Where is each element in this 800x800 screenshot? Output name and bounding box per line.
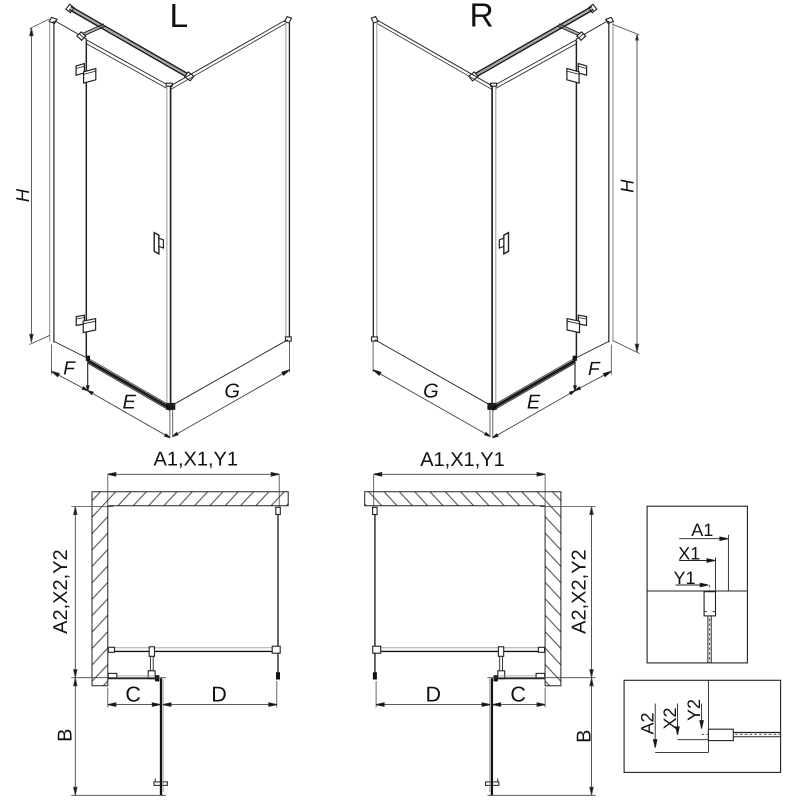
svg-text:A2,X2,Y2: A2,X2,Y2 <box>50 549 72 634</box>
svg-text:A1: A1 <box>691 520 713 540</box>
svg-text:Y2: Y2 <box>684 699 704 721</box>
svg-text:D: D <box>426 682 442 706</box>
svg-text:A1,X1,Y1: A1,X1,Y1 <box>154 449 239 471</box>
svg-text:G: G <box>423 381 439 403</box>
svg-text:F: F <box>63 359 76 380</box>
svg-text:B: B <box>574 730 596 743</box>
svg-text:E: E <box>527 392 541 414</box>
svg-text:A2,X2,Y2: A2,X2,Y2 <box>569 549 591 634</box>
svg-text:X1: X1 <box>678 543 700 563</box>
svg-text:A2: A2 <box>638 712 658 734</box>
svg-text:E: E <box>123 392 137 414</box>
svg-text:Y1: Y1 <box>674 568 696 588</box>
svg-text:H: H <box>616 179 637 193</box>
svg-text:L: L <box>170 0 189 35</box>
svg-text:A1,X1,Y1: A1,X1,Y1 <box>420 449 505 471</box>
svg-text:C: C <box>510 682 526 706</box>
svg-text:G: G <box>224 381 240 403</box>
svg-text:H: H <box>12 188 33 202</box>
svg-text:C: C <box>125 682 141 706</box>
svg-text:R: R <box>470 0 494 35</box>
svg-text:B: B <box>55 729 77 742</box>
svg-text:D: D <box>211 682 227 706</box>
svg-text:F: F <box>588 359 601 380</box>
svg-text:X2: X2 <box>660 707 680 729</box>
